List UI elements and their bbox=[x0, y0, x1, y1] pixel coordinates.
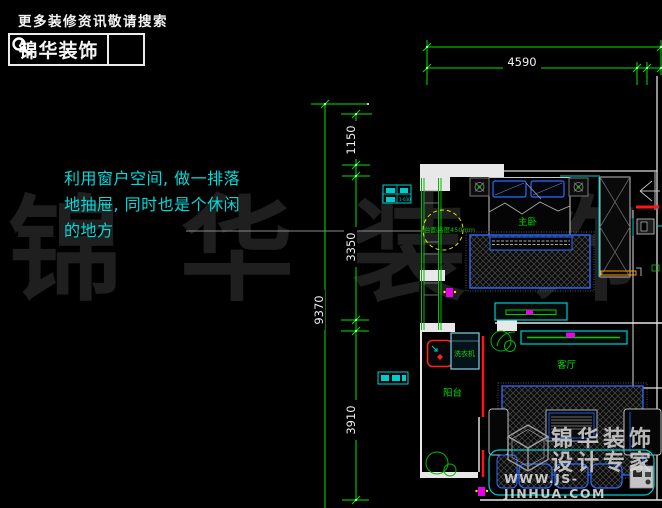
logo-website-url: WWW.JS-JINHUA.COM bbox=[504, 471, 662, 501]
plant-top bbox=[491, 331, 516, 352]
switch-panel-upper: 1-030 bbox=[383, 185, 411, 203]
washing-machine-symbol bbox=[428, 341, 453, 367]
tv-cabinet bbox=[521, 331, 627, 344]
nightstand-left bbox=[470, 178, 489, 196]
switch-panel-lower bbox=[378, 372, 408, 384]
socket-symbol-balcony bbox=[475, 487, 488, 496]
socket-symbol-bedroom bbox=[443, 288, 456, 297]
search-button bbox=[107, 35, 143, 64]
brand-search-banner: 锦华装饰 bbox=[8, 33, 145, 66]
bed bbox=[489, 178, 570, 241]
dim-label-9370: 9370 bbox=[312, 295, 326, 324]
switch-code-label: 1-030 bbox=[399, 197, 411, 202]
washing-machine-label: 洗衣机 bbox=[454, 349, 475, 358]
counter-height-label: 台面高度450mm bbox=[424, 225, 475, 234]
dim-label-1150: 1150 bbox=[344, 125, 358, 154]
cad-floorplan-screenshot: 锦华装饰 bbox=[0, 0, 662, 508]
master-bedroom-label: 主卧 bbox=[518, 216, 538, 228]
washing-machine-box: 洗衣机 bbox=[451, 333, 479, 369]
dim-label-top-width: 4590 bbox=[507, 55, 536, 69]
window-drawer-bench bbox=[422, 178, 442, 330]
living-room-label: 客厅 bbox=[557, 359, 577, 371]
search-icon bbox=[10, 35, 32, 57]
low-cabinet bbox=[495, 303, 567, 320]
design-note-text: 利用窗户空间, 做一排落 地抽屉, 同时也是个休闲 的地方 bbox=[64, 166, 304, 244]
bedroom-carpet bbox=[466, 232, 594, 291]
door-swing-arc bbox=[497, 332, 515, 346]
armchair-left bbox=[489, 409, 508, 455]
header-tagline: 更多装修资讯敬请搜索 bbox=[18, 10, 168, 30]
dim-label-3350: 3350 bbox=[344, 232, 358, 261]
wardrobe bbox=[599, 177, 641, 277]
balcony-label: 阳台 bbox=[443, 387, 462, 399]
nightstand-right bbox=[569, 178, 588, 196]
wall-fixture bbox=[633, 218, 662, 236]
dim-label-3910: 3910 bbox=[344, 405, 358, 434]
green-marker bbox=[652, 265, 659, 271]
